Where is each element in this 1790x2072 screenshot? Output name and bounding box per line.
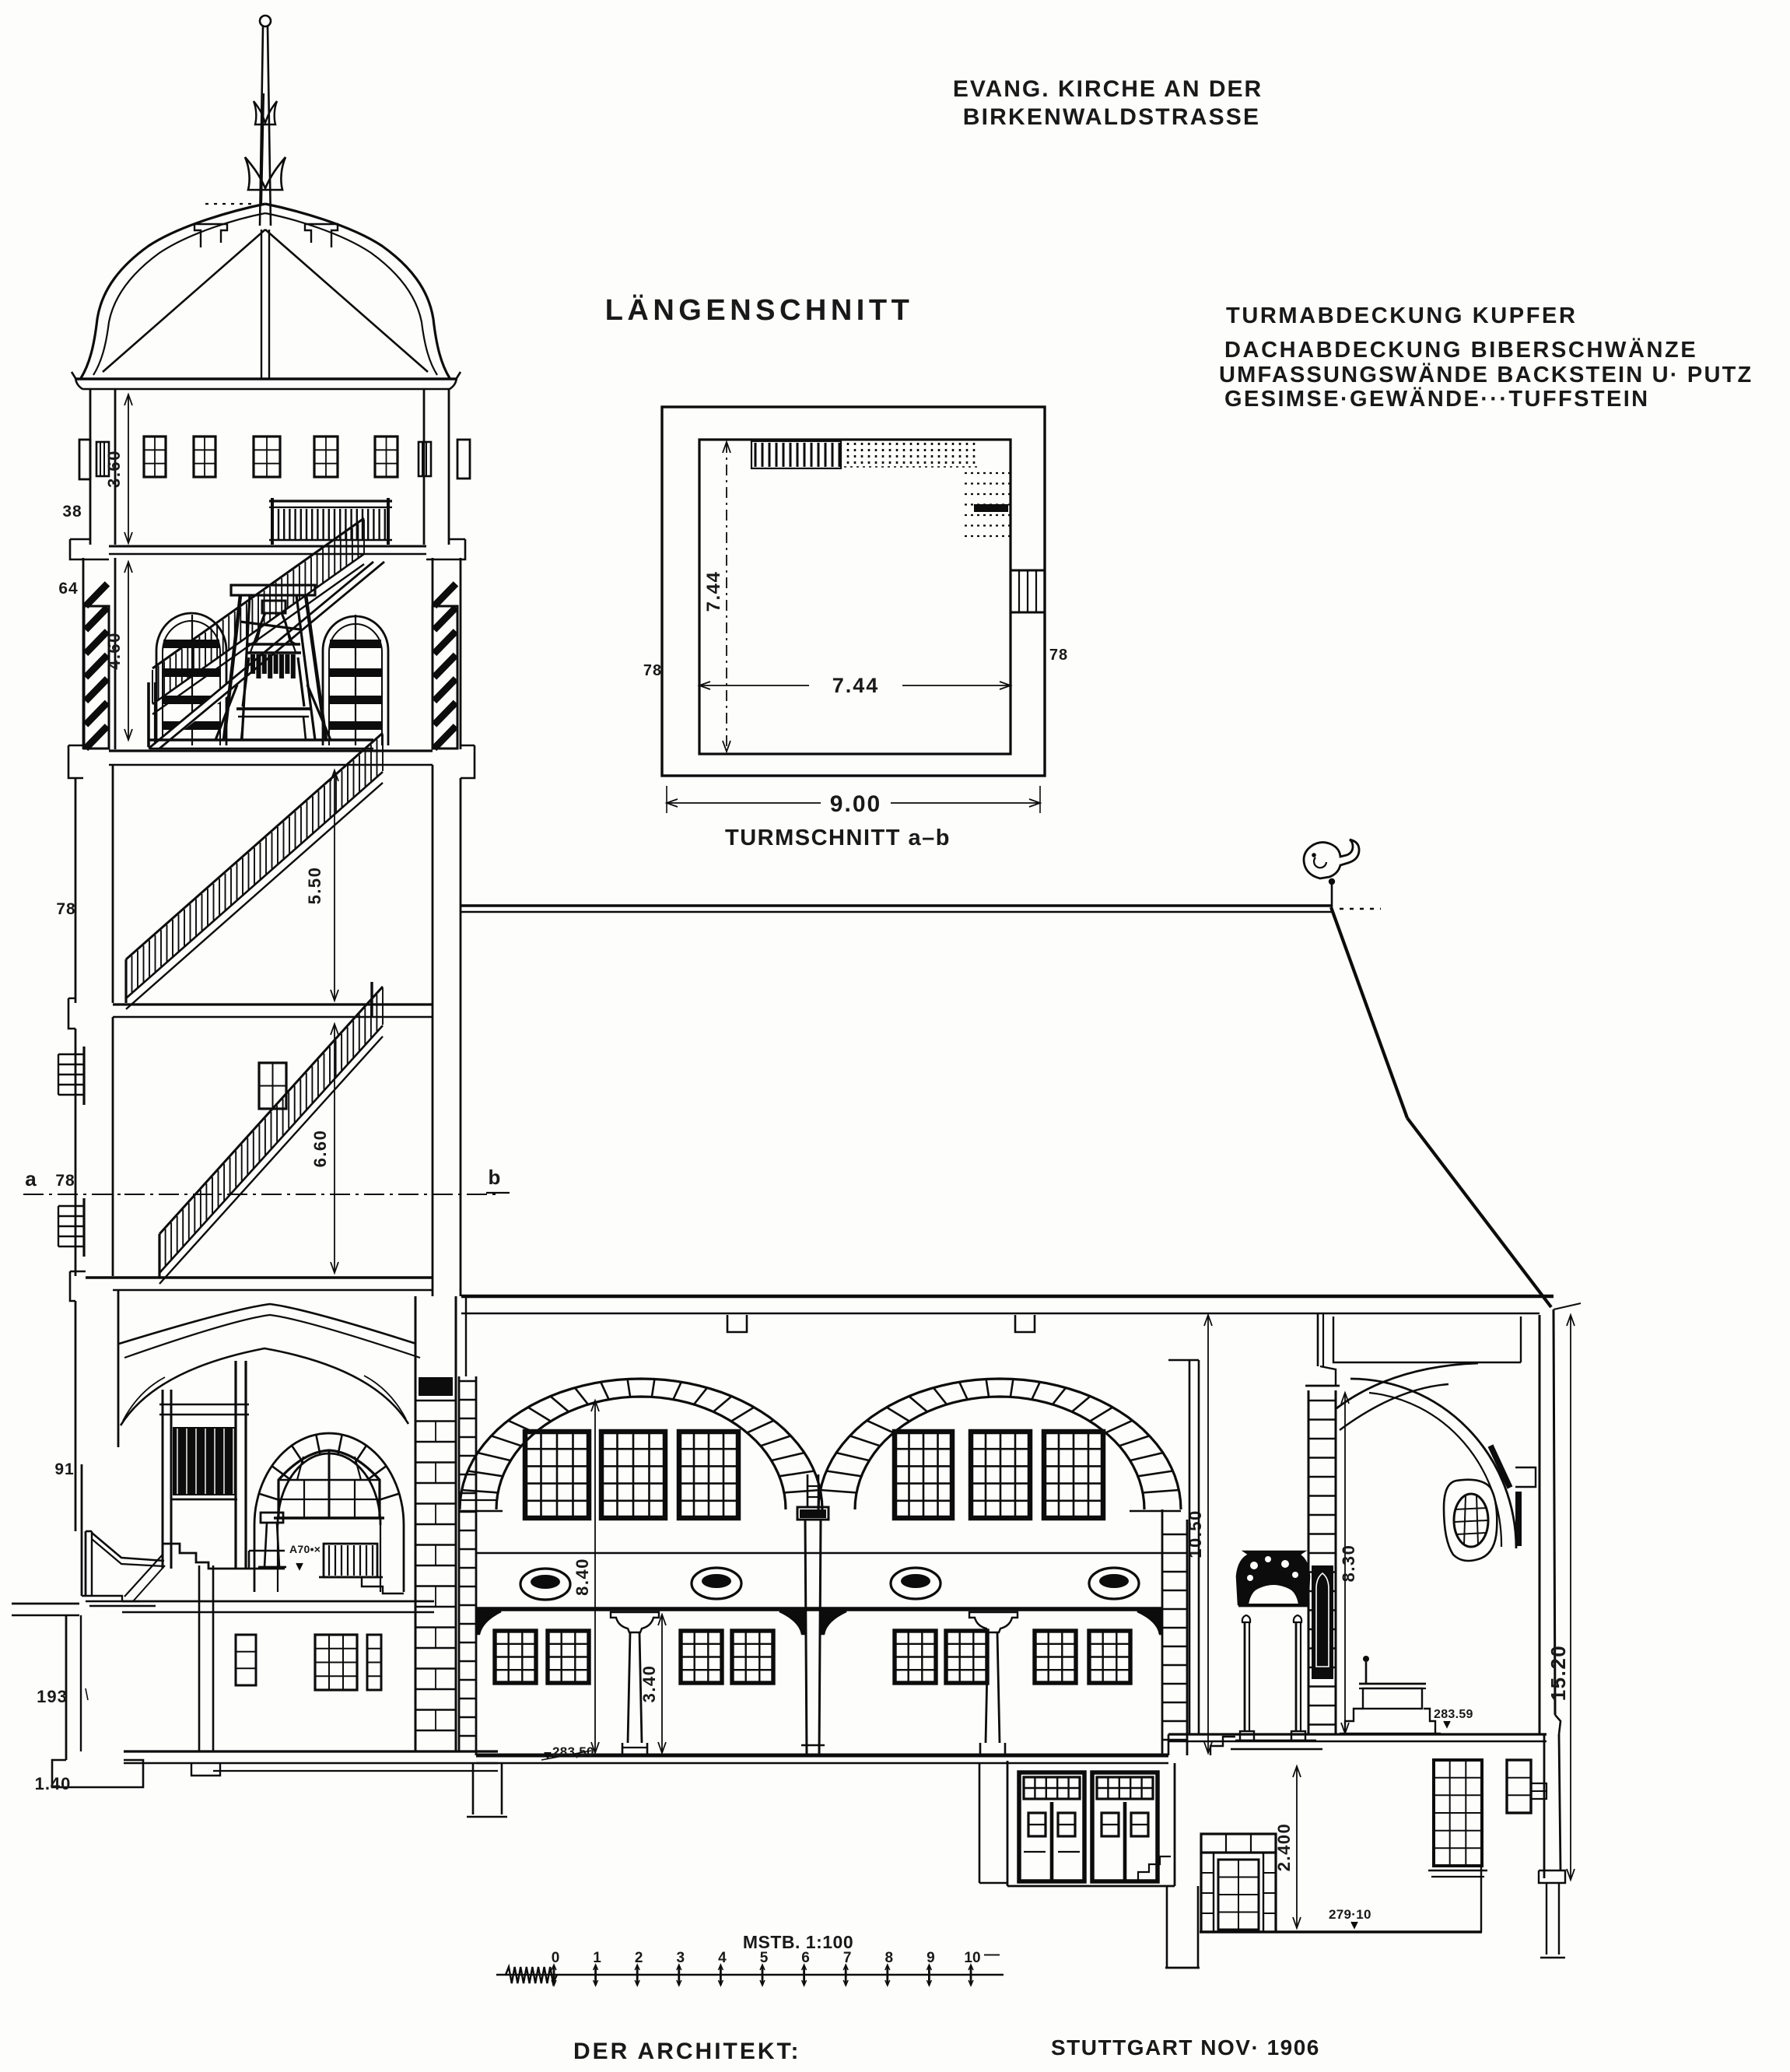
svg-text:TURMABDECKUNG KUPFER: TURMABDECKUNG KUPFER — [1226, 303, 1578, 328]
svg-text:DACHABDECKUNG BIBERSCHWÄNZE: DACHABDECKUNG BIBERSCHWÄNZE — [1224, 337, 1697, 363]
svg-text:1.40: 1.40 — [35, 1774, 72, 1793]
svg-text:—: — — [984, 1946, 1000, 1963]
svg-text:DER ARCHITEKT:: DER ARCHITEKT: — [573, 2039, 801, 2064]
svg-text:7.44: 7.44 — [832, 674, 880, 697]
svg-text:7.44: 7.44 — [703, 571, 724, 612]
svg-text:8.30: 8.30 — [1339, 1544, 1358, 1583]
svg-text:78: 78 — [643, 662, 662, 679]
svg-text:A70•×: A70•× — [289, 1543, 321, 1555]
svg-text:LÄNGENSCHNITT: LÄNGENSCHNITT — [605, 293, 914, 327]
svg-text:78: 78 — [56, 900, 75, 918]
svg-text:5: 5 — [760, 1950, 769, 1966]
svg-text:2: 2 — [635, 1950, 643, 1966]
svg-text:8.40: 8.40 — [573, 1558, 592, 1596]
svg-text:78: 78 — [55, 1172, 75, 1190]
svg-text:10: 10 — [964, 1950, 980, 1966]
svg-text:GESIMSE·GEWÄNDE···TUFFSTEIN: GESIMSE·GEWÄNDE···TUFFSTEIN — [1224, 386, 1650, 412]
svg-text:6: 6 — [801, 1950, 810, 1966]
svg-text:0: 0 — [552, 1950, 560, 1966]
svg-text:64: 64 — [58, 580, 78, 598]
svg-text:6.60: 6.60 — [310, 1130, 330, 1168]
svg-text:9: 9 — [927, 1950, 935, 1966]
svg-text:TURMSCHNITT a–b: TURMSCHNITT a–b — [725, 826, 951, 850]
svg-text:91: 91 — [54, 1460, 74, 1478]
svg-text:1: 1 — [593, 1950, 601, 1966]
svg-text:9.00: 9.00 — [830, 791, 881, 817]
svg-text:283.59: 283.59 — [1434, 1708, 1473, 1721]
svg-text:3.60: 3.60 — [104, 450, 124, 488]
svg-text:3.40: 3.40 — [639, 1665, 659, 1703]
svg-text:8: 8 — [885, 1950, 894, 1966]
svg-text:38: 38 — [62, 503, 82, 521]
svg-text:EVANG. KIRCHE AN DER: EVANG. KIRCHE AN DER — [953, 76, 1263, 102]
svg-text:UMFASSUNGSWÄNDE BACKSTEIN U·: UMFASSUNGSWÄNDE BACKSTEIN U· PUTZ — [1219, 362, 1753, 387]
svg-text:BIRKENWALDSTRASSE: BIRKENWALDSTRASSE — [963, 104, 1260, 130]
svg-text:b: b — [489, 1166, 502, 1189]
svg-text:a: a — [25, 1167, 37, 1190]
svg-text:3: 3 — [677, 1950, 685, 1966]
svg-text:279·10: 279·10 — [1329, 1907, 1371, 1922]
svg-text:7: 7 — [843, 1950, 852, 1966]
svg-text:4.60: 4.60 — [104, 632, 124, 670]
svg-text:78: 78 — [1049, 647, 1068, 664]
svg-text:4: 4 — [718, 1950, 727, 1966]
svg-text:5.50: 5.50 — [305, 867, 324, 905]
svg-text:15.20: 15.20 — [1547, 1645, 1570, 1702]
svg-text:2.400: 2.400 — [1274, 1823, 1294, 1872]
svg-text:193: 193 — [37, 1687, 68, 1706]
svg-text:STUTTGART NOV· 1906: STUTTGART NOV· 1906 — [1051, 2035, 1320, 2060]
